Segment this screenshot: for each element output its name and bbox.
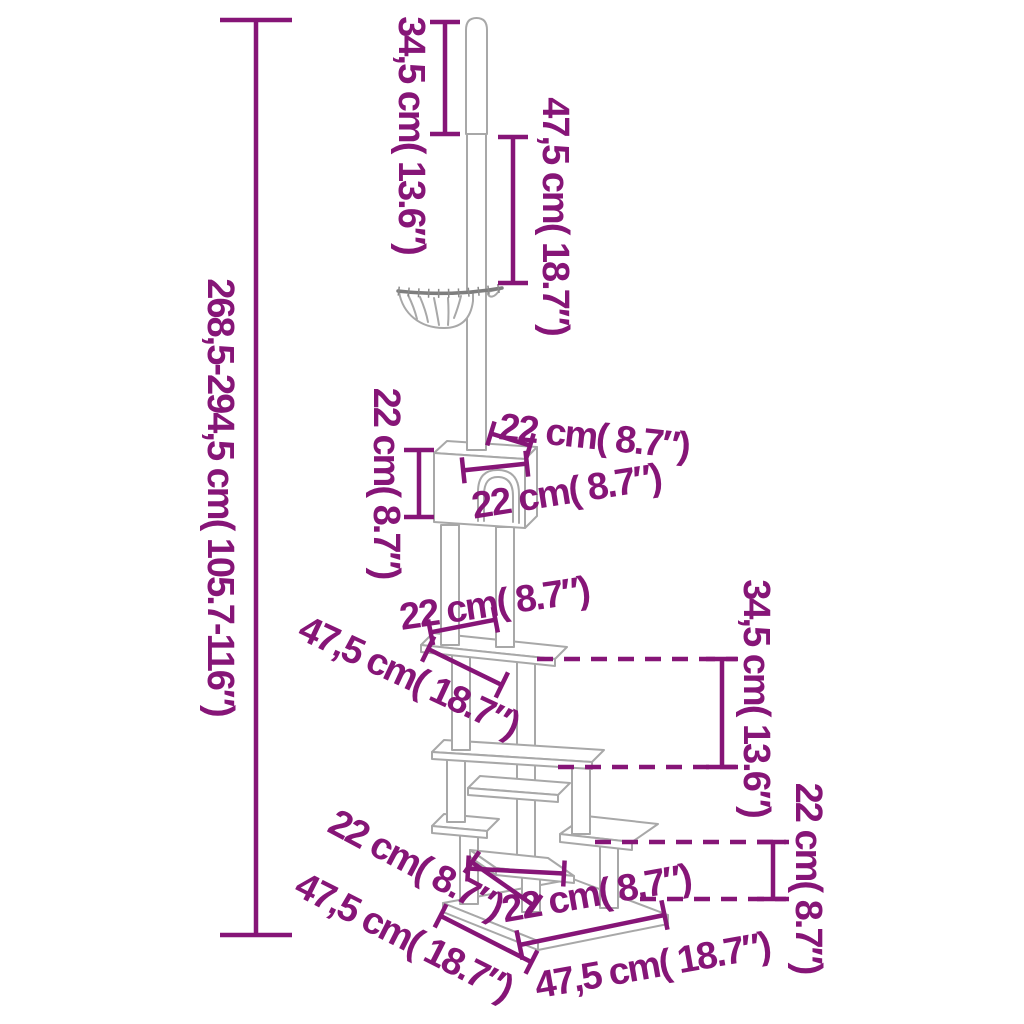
dim-ceiling-pole-line <box>430 22 460 134</box>
dim-upper-pole-line <box>498 137 528 283</box>
cat-tree-diagram-svg: 268,5-294,5 cm( 105.7-116″) 34,5 cm( 13.… <box>0 0 1024 1024</box>
dim-label-upper-pole: 47,5 cm( 18.7″) <box>534 97 576 335</box>
dim-label-ceiling-pole: 34,5 cm( 13.6″) <box>390 16 432 254</box>
dim-label-step-drop: 22 cm( 8.7″) <box>787 783 829 974</box>
dim-platform-drop-line <box>706 659 738 767</box>
ceiling-tensioner <box>466 18 487 134</box>
dim-label-post-spacing: 22 cm( 8.7″) <box>397 569 592 639</box>
dim-condo-height-line <box>404 450 434 517</box>
dim-label-platform-drop: 34,5 cm( 13.6″) <box>735 579 777 817</box>
dim-label-condo-height: 22 cm( 8.7″) <box>365 388 407 579</box>
ceiling-pole <box>466 18 487 450</box>
support-post <box>447 758 465 822</box>
product-dimension-diagram: 268,5-294,5 cm( 105.7-116″) 34,5 cm( 13.… <box>0 0 1024 1024</box>
dim-step-drop-line <box>757 842 789 899</box>
dim-label-total-height: 268,5-294,5 cm( 105.7-116″) <box>199 278 241 716</box>
